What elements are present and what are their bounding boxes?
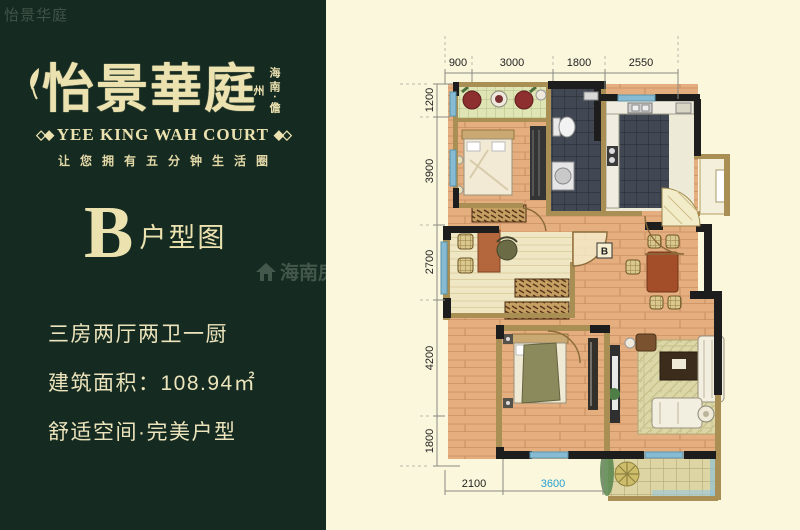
svg-text:900: 900 xyxy=(449,57,467,69)
poster-page: 怡景华庭 怡景華庭 海南·儋州 ◇◆ YEE KING WAH COURT ◆◇… xyxy=(0,0,800,530)
svg-text:1800: 1800 xyxy=(424,429,436,453)
svg-text:B: B xyxy=(601,247,608,258)
svg-text:1200: 1200 xyxy=(424,88,436,112)
room-marker: B xyxy=(597,243,612,258)
svg-text:4200: 4200 xyxy=(424,346,436,370)
floor-plan: B 900 3000 1800 2550 1200 3900 2700 4200… xyxy=(0,0,800,530)
svg-text:3900: 3900 xyxy=(424,159,436,183)
svg-text:3600: 3600 xyxy=(541,478,565,490)
svg-text:1800: 1800 xyxy=(567,57,591,69)
svg-text:2100: 2100 xyxy=(462,478,486,490)
bedroom2-furniture xyxy=(455,126,546,200)
svg-text:2550: 2550 xyxy=(629,57,653,69)
svg-text:2700: 2700 xyxy=(424,250,436,274)
svg-text:3000: 3000 xyxy=(500,57,524,69)
